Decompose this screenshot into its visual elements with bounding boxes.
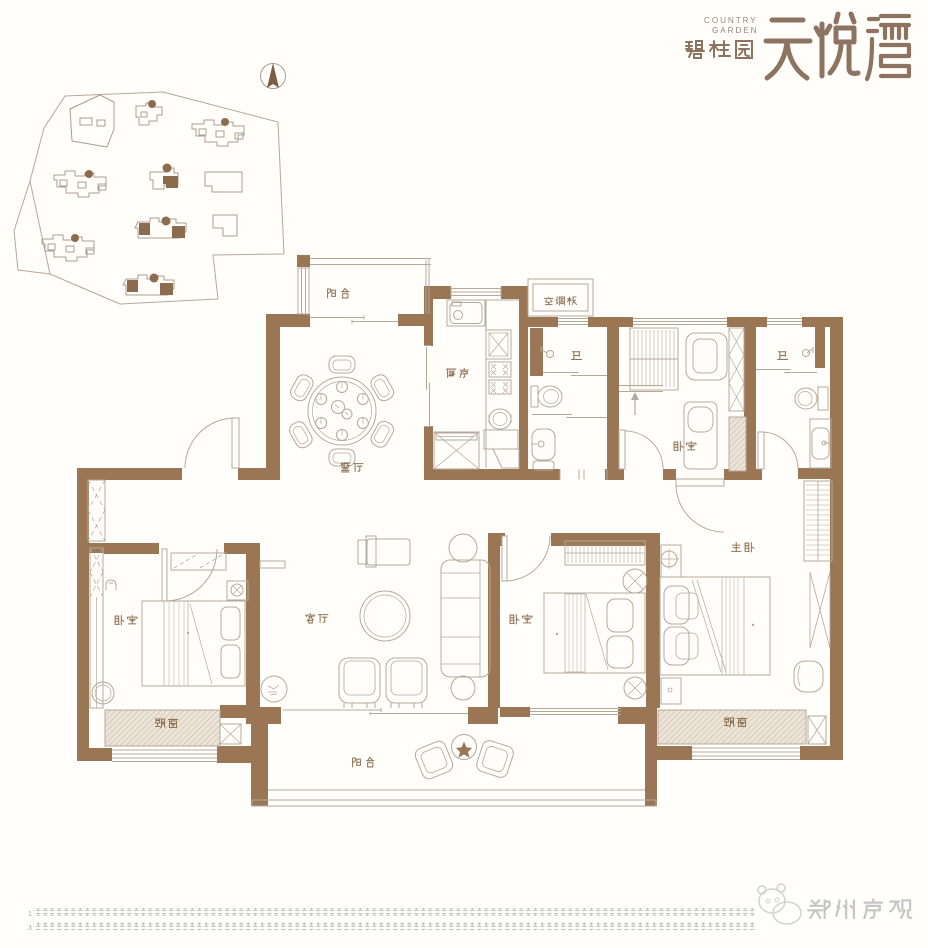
svg-text:3: 3 (28, 925, 32, 932)
svg-text:1: 1 (28, 911, 32, 918)
svg-text:COUNTRY: COUNTRY (704, 16, 758, 25)
svg-text:GARDEN: GARDEN (712, 26, 758, 35)
